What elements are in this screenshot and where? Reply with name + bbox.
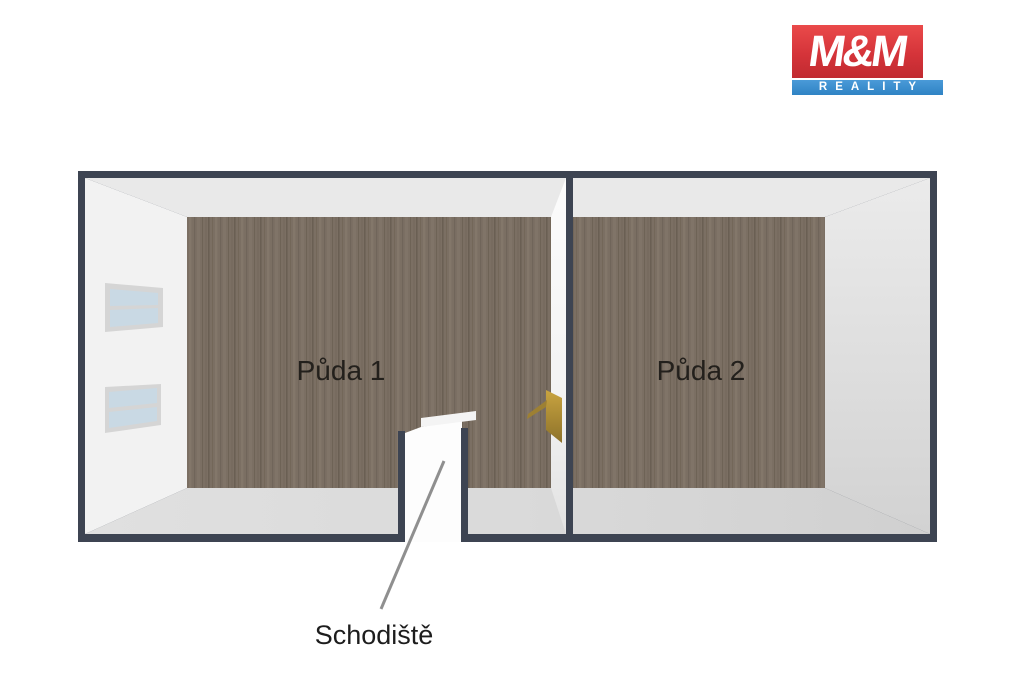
room2-label: Půda 2	[657, 355, 746, 386]
stairwell-right-wall-top	[461, 428, 468, 542]
divider-wall-face	[551, 178, 566, 534]
stairwell-opening	[405, 420, 462, 542]
stairs-label: Schodiště	[315, 620, 434, 650]
right-wall-face	[825, 178, 930, 534]
top-wall-face	[85, 178, 930, 217]
logo-red-box: M&M	[792, 25, 923, 78]
stairwell-left-wall-top	[398, 431, 405, 542]
logo-mm-text: M&M	[806, 30, 908, 74]
divider-wall-top	[566, 171, 573, 542]
floorplan-page: Půda 1 Půda 2 Schodiště M&M REALITY	[0, 0, 1024, 682]
room2-floor	[573, 217, 825, 488]
room1-label: Půda 1	[297, 355, 386, 386]
left-wall-face	[85, 178, 187, 534]
bottom-wall-face	[85, 488, 930, 534]
floorplan-canvas: Půda 1 Půda 2 Schodiště	[0, 0, 1024, 682]
window-2	[105, 384, 161, 433]
window-1	[105, 283, 163, 332]
logo-blue-bar: REALITY	[792, 80, 943, 95]
room1-floor	[187, 217, 551, 488]
logo-reality-text: REALITY	[811, 82, 924, 94]
mm-reality-logo: M&M REALITY	[792, 25, 943, 95]
